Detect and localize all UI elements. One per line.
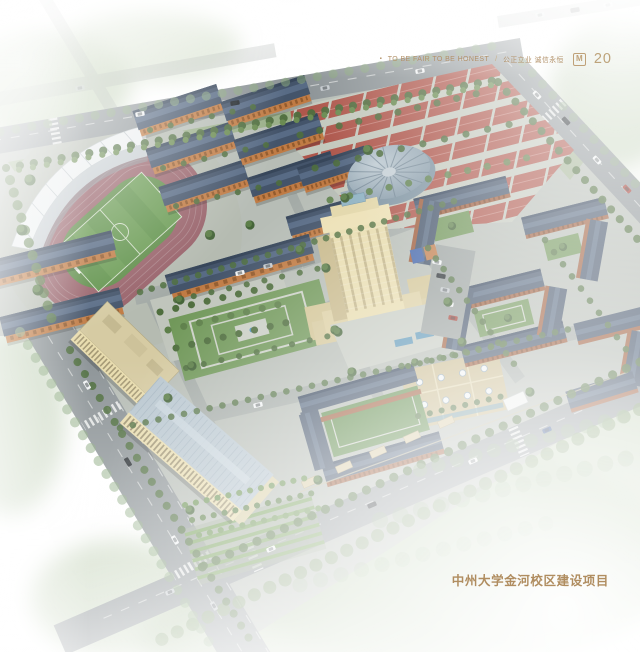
header-ornament: ▪ <box>380 56 382 62</box>
campus-aerial-rendering <box>0 0 640 652</box>
brochure-page: ▪ TO BE FAIR TO BE HONEST / 公正立业 诚信永恒 M … <box>0 0 640 652</box>
project-caption: 中州大学金河校区建设项目 <box>452 570 609 589</box>
publisher-logo-icon: M <box>573 53 586 66</box>
slogan-chinese: 公正立业 诚信永恒 <box>503 54 564 64</box>
page-number: 20 <box>594 51 612 67</box>
mist-overlay <box>0 0 640 652</box>
slogan-english: TO BE FAIR TO BE HONEST <box>388 56 489 63</box>
page-header: ▪ TO BE FAIR TO BE HONEST / 公正立业 诚信永恒 M … <box>380 51 612 67</box>
slogan-separator: / <box>495 56 497 63</box>
